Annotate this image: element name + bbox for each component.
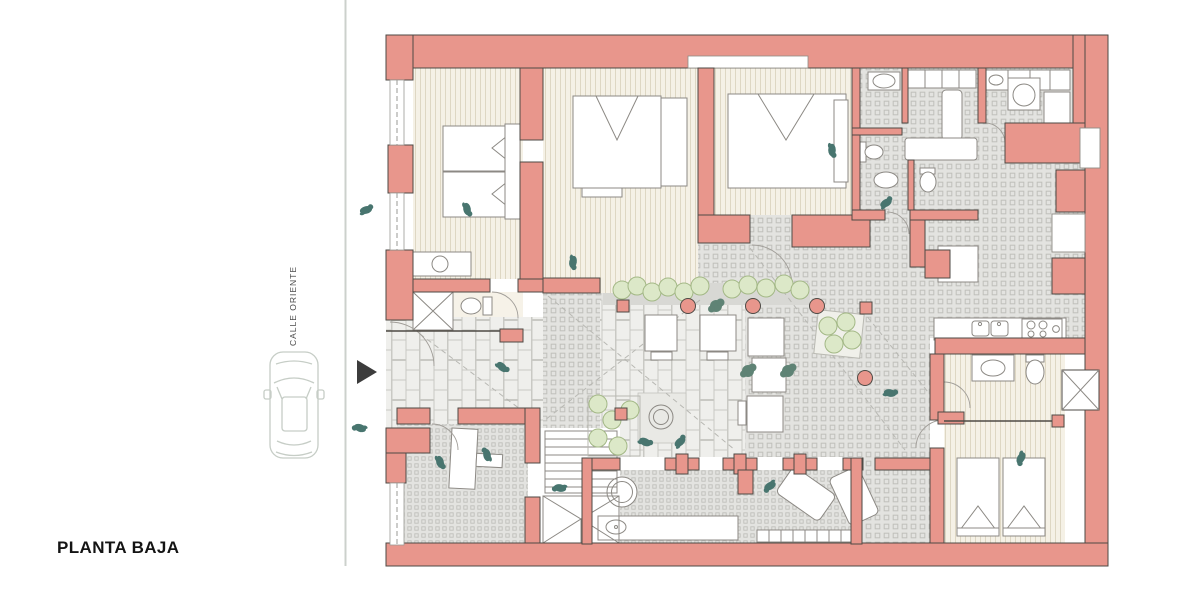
car-icon (264, 352, 324, 458)
street-label: CALLE ORIENTE (288, 266, 298, 346)
shower (413, 292, 453, 330)
toilet (461, 297, 492, 315)
entrance-arrow-icon (357, 360, 377, 384)
wardrobe (505, 124, 520, 219)
street-annotations: CALLE ORIENTE (264, 0, 377, 566)
north-wall-recess (688, 56, 808, 68)
bed-queen-1 (573, 96, 687, 197)
bed-twin-3 (957, 458, 999, 536)
person-figure (351, 421, 368, 434)
bed-queen-2 (728, 94, 848, 188)
suite-closet (1062, 370, 1099, 410)
kitchen-counter (934, 318, 1066, 340)
fountain-pad (638, 393, 686, 443)
bed-twin-4 (1003, 458, 1045, 536)
vanity-sink (413, 252, 471, 276)
south-wall (386, 543, 1108, 566)
person-figure (358, 204, 375, 216)
east-wall (1085, 35, 1108, 566)
floor-plan-drawing: CALLE ORIENTE (0, 0, 1200, 600)
floor-plan-sheet: PLANTA BAJA (0, 0, 1200, 600)
courtyard-tree (814, 310, 864, 359)
